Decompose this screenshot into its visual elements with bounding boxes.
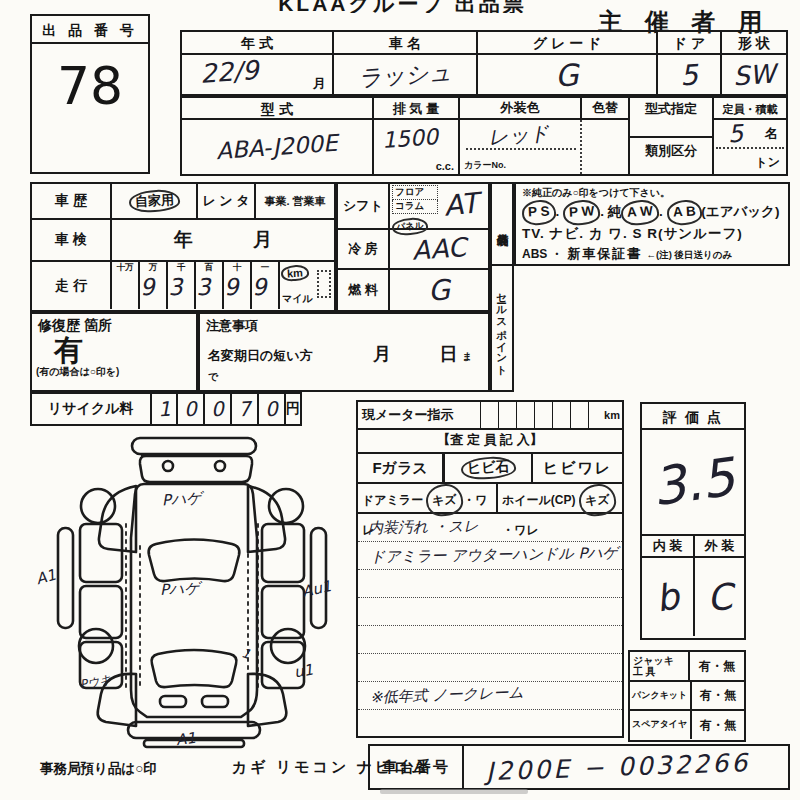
digit-100: 3	[195, 274, 211, 301]
door-value: 5	[679, 58, 699, 92]
displacement-label: 排 気 量	[374, 98, 458, 120]
chassis-value: J200E − 0032266	[464, 748, 751, 787]
history-rental: レ ン タ	[196, 184, 254, 218]
grade-label: グ レ ー ド	[478, 32, 656, 55]
equipment-abs: ABS ・	[522, 247, 563, 261]
carname-value: ラッシュ	[357, 56, 453, 93]
mileage-digit-cell: 万 9	[138, 262, 166, 309]
crack-label: ヒビワレ	[531, 454, 622, 482]
place-100k: 十万	[112, 262, 138, 274]
mileage-digit-cell: 千 3	[166, 262, 194, 309]
notes-area: 内装汚れ ・スレ ドアミラー アウターハンドル Pハゲ ※低年式 ノークレーム	[358, 514, 622, 738]
equipment-label: 装備品	[492, 184, 512, 264]
displacement-unit: c.c.	[436, 160, 454, 172]
jack-label-2: 工 具	[630, 666, 688, 677]
inspection-label: 車 検	[32, 220, 110, 260]
mark-roof: Pハゲ	[160, 579, 201, 600]
year-value: 22/9	[199, 55, 259, 89]
shift-value-area: フロア コラム パネル AT	[390, 184, 488, 228]
meter-unit: km	[588, 402, 622, 428]
circled-token: A B	[666, 199, 702, 226]
mileage-km: km	[281, 264, 310, 281]
capacity-label: 定員・積載	[714, 98, 786, 120]
color-value: レッド	[487, 120, 550, 151]
color-value-area: レッド カラーNo.	[460, 120, 628, 174]
sales-point-label: セールスポイント	[492, 266, 512, 390]
interior-value: b	[653, 575, 683, 619]
note-line	[358, 574, 368, 592]
history-business: 事業. 営業車	[254, 184, 334, 218]
inspection-month: 月	[253, 227, 272, 253]
door-cell: ド ア 5	[656, 32, 720, 94]
recycle-digit: 1	[157, 397, 171, 422]
lot-number: 78	[32, 56, 148, 116]
deposit-items: カギ リモコン ナビロム	[232, 758, 430, 777]
recycle-digit: 0	[264, 397, 278, 422]
meter-cell	[570, 402, 588, 428]
capacity-ton-label: トン	[755, 154, 780, 171]
circled-token: キズ	[578, 483, 616, 517]
meter-cell	[480, 402, 498, 428]
mileage-digit-cell: 一 9	[250, 262, 278, 309]
tools-table: ジャッキ 工 具 有・無 パンクキット 有・無 スペアタイヤ 有・無	[628, 650, 746, 742]
meter-cell	[534, 402, 552, 428]
circled-token: P S	[521, 199, 556, 226]
shift-floor: フロア	[392, 185, 438, 200]
recycle-digit: 0	[211, 397, 225, 422]
f-glass-label: Fガラス	[358, 454, 445, 482]
shape-cell: 形 状 SW	[720, 32, 786, 94]
name-change-label: 名変期日の短い方	[208, 348, 313, 363]
shift-label: シフト	[338, 184, 390, 228]
capacity-value-area: 5 名 トン	[714, 120, 786, 174]
equipment-label-box: 装備品	[490, 182, 514, 266]
year-month-suffix: 月	[313, 75, 326, 93]
place-10k: 万	[140, 262, 166, 274]
shift-column: コラム	[392, 200, 438, 214]
token: ・ワレ	[502, 523, 539, 537]
token: (エアバック)	[701, 204, 779, 219]
capacity-divider	[716, 147, 784, 149]
deposit-note: 事務局預り品は○印	[40, 760, 157, 778]
mileage-digit-cell: 百 3	[194, 262, 222, 309]
puncture-label: パンクキット	[630, 682, 692, 709]
shift-value: AT	[442, 186, 479, 222]
recycle-label: リサイクル料	[32, 394, 152, 424]
puncture-value: 有・無	[692, 682, 744, 709]
circled-token: ヒビ石	[460, 456, 516, 481]
token: . 純	[600, 204, 621, 219]
jack-value: 有・無	[690, 652, 744, 680]
fuel-value: G	[427, 273, 451, 307]
equipment-line1: P S. P W. 純A W. A B(エアバック)	[522, 200, 782, 225]
equipment-line3: ABS ・ 新車保証書 ←(注) 後日送りのみ	[522, 244, 782, 263]
note-line: 内装汚れ ・スレ	[358, 513, 479, 541]
sales-point-box: セールスポイント	[490, 266, 514, 392]
history-private: 自家用	[128, 189, 180, 214]
note-line: ドアミラー アウターハンドル Pハゲ	[358, 540, 619, 571]
name-change-month: 月	[373, 344, 391, 364]
displacement-value-area: 1500 c.c.	[374, 120, 458, 174]
capacity-cell: 定員・積載 5 名 トン	[712, 98, 786, 174]
note-line	[358, 714, 368, 732]
interior-label: 内 装	[642, 536, 695, 556]
year-cell: 年 式 22/9 月	[182, 32, 332, 94]
inspection-year: 年	[174, 227, 193, 253]
mileage-mile: マイル	[282, 292, 313, 306]
mark-right-rear: u1	[293, 660, 315, 681]
score-box: 評 価 点 3.5 内 装 外 装 b C	[640, 402, 746, 640]
place-10: 十	[224, 262, 250, 274]
model-cell: 型 式 ABA-J200E	[182, 98, 372, 174]
name-change-row: 名変期日の短い方 月 日 まで	[208, 342, 480, 384]
note-line	[358, 658, 368, 676]
grade-value: G	[554, 57, 580, 94]
color-dotted-line	[466, 148, 576, 150]
repair-note: (有の場合は○印を)	[32, 365, 196, 379]
recycle-digit: 7	[237, 397, 251, 422]
wheel-cell: ホイール(CP) キズ・ワレ	[496, 484, 622, 512]
fuel-label: 燃 料	[338, 270, 390, 310]
score-value: 3.5	[648, 447, 738, 518]
spec-row-1: 年 式 22/9 月 車 名 ラッシュ グ レ ー ド G ド ア 5 形 状 …	[180, 30, 788, 96]
displacement-value: 1500	[381, 124, 439, 153]
capacity-unit: 名	[765, 125, 778, 143]
mileage-mile-box	[317, 270, 331, 298]
recycle-row: リサイクル料 1 0 0 7 0 円	[30, 392, 302, 426]
sheet-title-clip: KLAAグループ 出品票	[230, 0, 575, 13]
stone-chip-cell: ヒビ石	[445, 454, 531, 482]
history-private-cell: 自家用	[110, 184, 196, 218]
repair-value: 有	[32, 335, 196, 365]
shift-table: シフト フロア コラム パネル AT 冷 房 AAC 燃 料 G	[336, 182, 490, 312]
model-value: ABA-J200E	[215, 130, 338, 164]
spare-label: スペアタイヤ	[630, 711, 692, 739]
digit-1k: 3	[167, 274, 183, 301]
mark-bottom: A1	[175, 729, 197, 750]
spec-row-2: 型 式 ABA-J200E 排 気 量 1500 c.c. 外装色 色替 レッド…	[180, 96, 788, 176]
caution-label: 注意事項	[200, 314, 488, 335]
type-class-cell: 型式指定 類別区分	[628, 98, 712, 174]
scan-smudge	[380, 789, 528, 794]
color-label: 外装色	[460, 98, 580, 118]
exterior-label: 外 装	[695, 536, 744, 556]
meter-cell	[498, 402, 516, 428]
token: .	[556, 204, 564, 219]
spare-value: 有・無	[692, 711, 744, 739]
grade-cell: グ レ ー ド G	[476, 32, 656, 94]
equipment-box: ※純正のみ○印をつけて下さい。 P S. P W. 純A W. A B(エアバッ…	[514, 182, 790, 266]
model-label: 型 式	[182, 98, 372, 120]
meter-cell	[552, 402, 570, 428]
token: .	[659, 204, 667, 219]
place-100: 百	[196, 262, 222, 274]
year-label: 年 式	[182, 32, 332, 55]
circled-token: キズ	[426, 483, 464, 517]
token: ホイール(CP)	[502, 493, 579, 507]
assessor-header: 【査 定 員 記 入】	[358, 430, 622, 454]
color-no-label: カラーNo.	[464, 159, 506, 172]
mirror-cell: ドアミラー キズ・ワレ	[358, 484, 496, 512]
circled-token: A W	[621, 199, 660, 226]
repair-label: 修復歴 箇所	[32, 314, 196, 335]
shape-value: SW	[732, 59, 776, 92]
score-label: 評 価 点	[642, 404, 744, 430]
lot-label: 出 品 番 号	[32, 16, 148, 44]
jack-label-1: ジャッキ	[630, 655, 688, 666]
damage-diagram: Pハゲ Pハゲ A1 Au1 Pウキ u1 1 A1	[36, 424, 348, 750]
history-table: 車 歴 自家用 レ ン タ 事業. 営業車 車 検 年 月 走 行 十万 万 9	[30, 182, 336, 312]
displacement-cell: 排 気 量 1500 c.c.	[372, 98, 458, 174]
mileage-digit-cell: 十 9	[222, 262, 250, 309]
meter-cell	[516, 402, 534, 428]
equipment-line2: TV. ナビ. カ ワ. S R(サンルーフ)	[522, 225, 782, 243]
equipment-warranty: 新車保証書	[567, 246, 642, 261]
recycle-digit: 0	[184, 397, 198, 422]
capacity-value: 5	[727, 120, 744, 149]
name-change-day: 日	[440, 344, 458, 364]
recycle-unit: 円	[286, 394, 300, 424]
note-line: ※低年式 ノークレーム	[358, 679, 525, 711]
color-cell: 外装色 色替 レッド カラーNo.	[458, 98, 628, 174]
chassis-row: 車台番号 J200E − 0032266	[368, 744, 790, 790]
note-line	[358, 630, 368, 648]
carname-label: 車 名	[334, 32, 476, 55]
lot-box: 出 品 番 号 78	[30, 14, 150, 174]
assessor-table: 現メーター指示 km 【査 定 員 記 入】 Fガラス ヒビ石 ヒビワレ ドアミ…	[356, 400, 624, 738]
circled-token: P W	[562, 199, 601, 226]
history-label: 車 歴	[32, 184, 110, 218]
equipment-warranty-note: ←(注) 後日送りのみ	[647, 249, 733, 260]
carname-cell: 車 名 ラッシュ	[332, 32, 476, 94]
shape-label: 形 状	[722, 32, 786, 55]
aircon-value: AAC	[411, 232, 467, 266]
place-1: 一	[252, 262, 278, 274]
door-label: ド ア	[658, 32, 720, 55]
aircon-label: 冷 房	[338, 230, 390, 268]
exterior-value: C	[705, 575, 734, 618]
mark-hood: Pハゲ	[161, 489, 202, 511]
meter-label: 現メーター指示	[358, 402, 480, 428]
repaint-divider	[580, 120, 582, 174]
equipment-note: ※純正のみ○印をつけて下さい。	[522, 186, 782, 200]
year-value-area: 22/9 月	[182, 55, 332, 95]
digit-10k: 9	[139, 274, 155, 301]
digit-1: 9	[251, 274, 267, 301]
mileage-digit-cell: 十万	[110, 262, 138, 309]
mileage-unit-cell: km マイル	[278, 262, 334, 309]
shift-panel: パネル	[392, 217, 428, 236]
classification-label: 類別区分	[630, 138, 712, 160]
auction-sheet: KLAAグループ 出品票 主 催 者 用 出 品 番 号 78 年 式 22/9…	[0, 0, 800, 800]
sheet-title: KLAAグループ 出品票	[230, 0, 575, 13]
note-line	[358, 602, 368, 620]
type-designation-label: 型式指定	[630, 98, 712, 118]
repair-box: 修復歴 箇所 有 (有の場合は○印を)	[30, 312, 198, 392]
place-1k: 千	[168, 262, 194, 274]
digit-10: 9	[223, 274, 239, 301]
repaint-label: 色替	[580, 98, 628, 118]
caution-box: 注意事項 名変期日の短い方 月 日 まで	[198, 312, 490, 392]
mileage-label: 走 行	[32, 262, 110, 309]
token: ドアミラー	[362, 493, 426, 507]
